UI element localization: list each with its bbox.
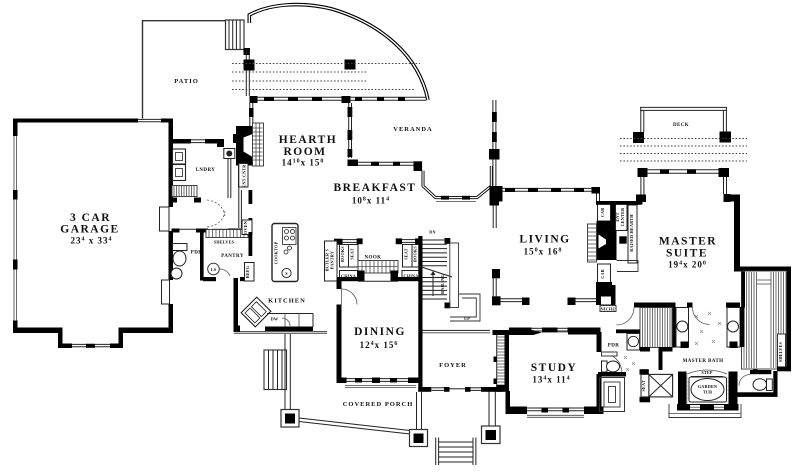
svg-text:CAB: CAB (600, 269, 605, 278)
svg-text:GARDEN: GARDEN (698, 384, 717, 389)
svg-text:BREAKFAST: BREAKFAST (334, 182, 417, 194)
svg-text:REFG: REFG (245, 265, 250, 278)
svg-text:GARAGE: GARAGE (60, 224, 119, 236)
svg-text:PANTRY: PANTRY (221, 254, 244, 259)
svg-text:SHELVES: SHELVES (778, 341, 783, 362)
svg-text:234 x 334: 234 x 334 (71, 236, 113, 246)
svg-text:DW: DW (271, 317, 279, 322)
svg-text:NICHE: NICHE (601, 306, 616, 311)
svg-text:UP: UP (464, 316, 470, 321)
svg-text:DN: DN (429, 230, 435, 235)
svg-text:OVEN: OVEN (243, 221, 248, 234)
svg-text:SUITE: SUITE (666, 248, 708, 260)
svg-text:VERANDA: VERANDA (393, 126, 433, 133)
svg-text:RAISED HEARTH: RAISED HEARTH (629, 214, 634, 252)
svg-text:108x 114: 108x 114 (352, 196, 390, 206)
svg-text:LIVING: LIVING (519, 234, 570, 246)
svg-text:LNDRY: LNDRY (196, 168, 216, 173)
svg-text:MASTER: MASTER (659, 236, 717, 248)
svg-text:124x 156: 124x 156 (360, 340, 399, 350)
svg-text:COVERED PORCH: COVERED PORCH (343, 401, 414, 408)
svg-text:SHELVES: SHELVES (214, 240, 235, 245)
svg-text:MASTER BATH: MASTER BATH (683, 359, 724, 364)
svg-text:COOKTOP: COOKTOP (274, 241, 279, 264)
svg-text:HEARTH: HEARTH (279, 134, 337, 146)
svg-text:FOYER: FOYER (439, 362, 467, 369)
svg-text:STUDY: STUDY (531, 362, 577, 374)
svg-text:LS: LS (211, 267, 217, 272)
svg-text:194x 200: 194x 200 (668, 260, 707, 270)
svg-text:BOOKS: BOOKS (340, 246, 345, 262)
svg-text:PANTRY: PANTRY (330, 251, 335, 269)
svg-text:DINING: DINING (354, 326, 406, 338)
svg-text:RAILING: RAILING (440, 274, 445, 294)
svg-text:SEAT: SEAT (404, 248, 409, 259)
svg-text:KITCHEN: KITCHEN (268, 298, 306, 305)
svg-text:TUB: TUB (703, 390, 712, 395)
svg-text:SEAT: SEAT (350, 248, 355, 259)
svg-text:CAB: CAB (600, 208, 605, 217)
svg-text:1410x 150: 1410x 150 (282, 158, 325, 168)
svg-text:STEP: STEP (701, 370, 713, 375)
svg-text:3 CAR: 3 CAR (70, 212, 111, 224)
svg-text:ROOM: ROOM (283, 146, 326, 158)
svg-text:134x 114: 134x 114 (532, 375, 570, 385)
svg-text:PDR: PDR (608, 344, 619, 349)
svg-text:SEAT: SEAT (641, 380, 646, 391)
svg-text:DECK: DECK (673, 123, 689, 128)
svg-text:BOOKS: BOOKS (413, 246, 418, 262)
svg-text:CENTER: CENTER (620, 207, 625, 226)
svg-text:150x 168: 150x 168 (524, 247, 563, 257)
svg-text:NOOK: NOOK (365, 256, 382, 261)
svg-text:ENT CNTR: ENT CNTR (242, 164, 247, 188)
svg-text:PATIO: PATIO (174, 78, 199, 85)
